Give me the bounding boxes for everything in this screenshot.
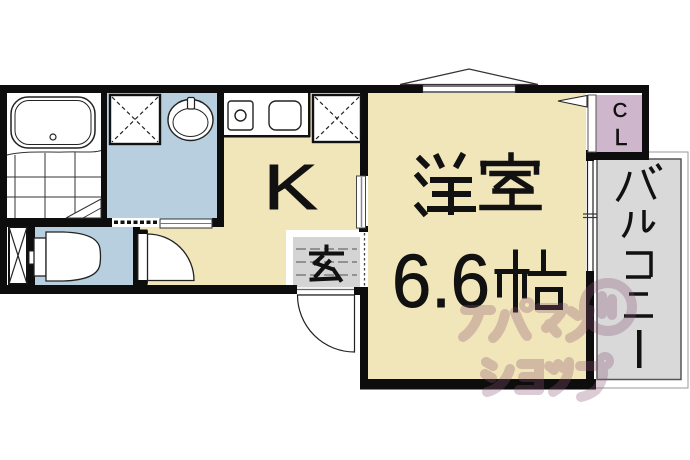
svg-text:L: L [615, 124, 628, 150]
svg-text:C: C [613, 100, 627, 122]
svg-text:K: K [264, 151, 318, 223]
